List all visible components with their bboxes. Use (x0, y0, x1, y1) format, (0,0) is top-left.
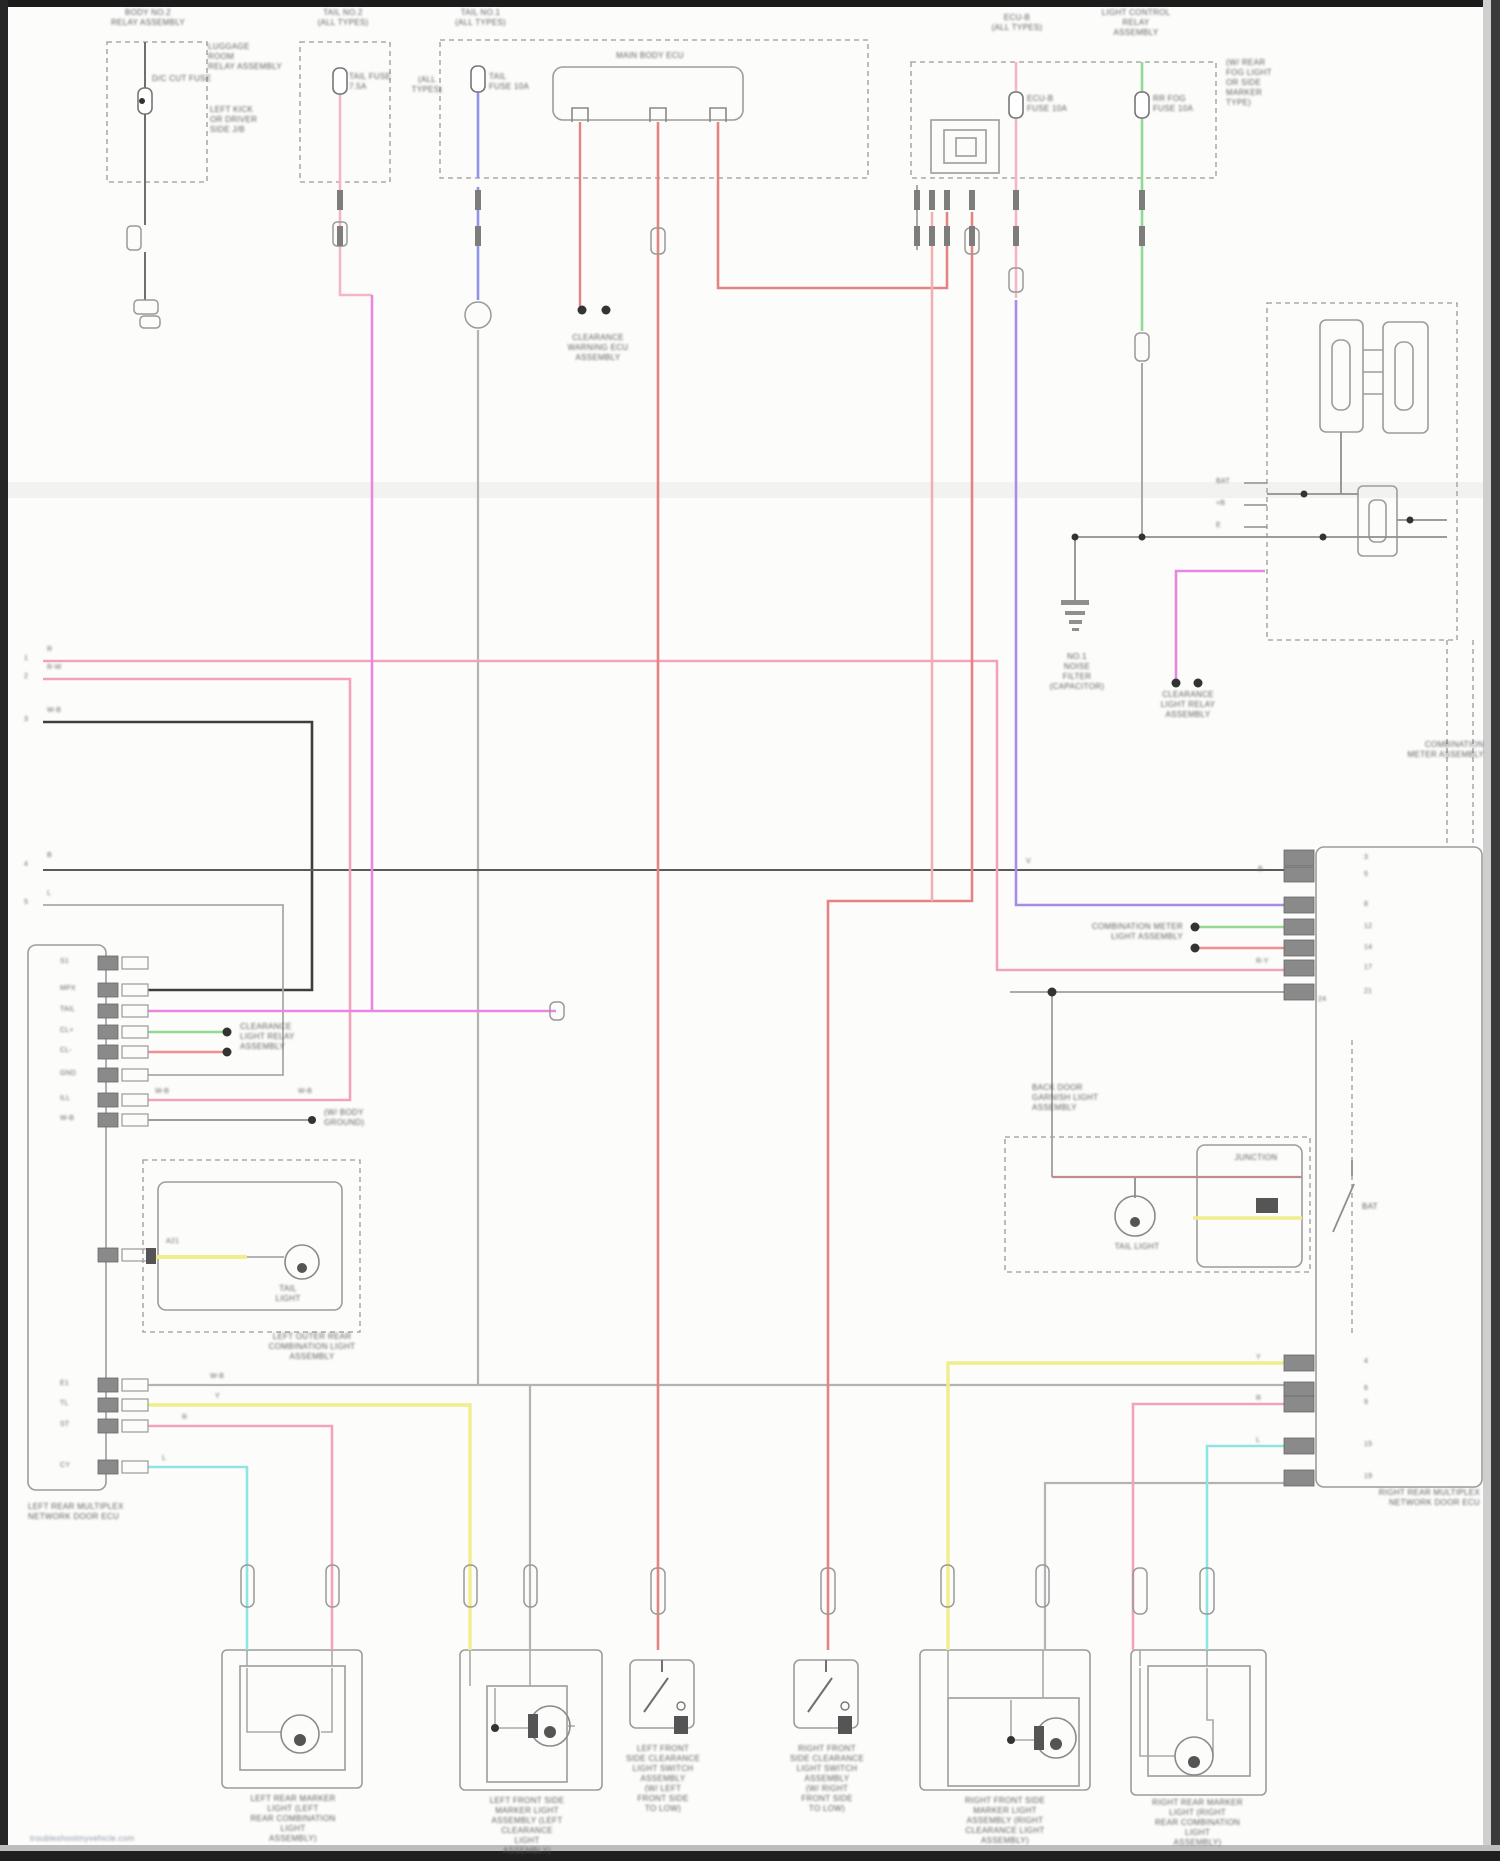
pin-code-5: L (47, 890, 51, 897)
wire-code-l: L (162, 1455, 166, 1462)
lbl-fuse5: RR FOGFUSE 10A (1153, 94, 1215, 114)
cap-left-kick-panel: LEFT KICKOR DRIVERSIDE J/B (210, 105, 300, 135)
lbl-bd-junction: JUNCTION (1220, 1153, 1292, 1163)
meter-pin-b: +B (1216, 500, 1225, 507)
scan-border-right-soft (1483, 0, 1491, 1861)
cap-right-rear-ecu: RIGHT REAR MULTIPLEXNETWORK DOOR ECU (1175, 1488, 1480, 1508)
rb-lo-code-l: L (1256, 1437, 1260, 1444)
cap-back-door-garnish: BACK DOORGARNISH LIGHTASSEMBLY (1032, 1083, 1150, 1113)
ecu-row-6: GND (60, 1070, 76, 1077)
cap-fuse4: ECU-B(ALL TYPES) (973, 13, 1061, 33)
wire-code-wb-1: W-B (155, 1088, 169, 1095)
pin-num-4: 4 (24, 861, 28, 868)
pin-code-2: R-W (47, 664, 62, 671)
cap-top-left-relay-block: BODY NO.2RELAY ASSEMBLY (83, 8, 213, 28)
cap-meter-light: COMBINATION METERLIGHT ASSEMBLY (1068, 922, 1183, 942)
lbl-fuse4: ECU-BFUSE 10A (1027, 94, 1087, 114)
cap-fuse3: TAIL NO.1(ALL TYPES) (438, 8, 523, 28)
cap-fuse2: TAIL NO.2(ALL TYPES) (288, 8, 398, 28)
cap-box1: LEFT REAR MARKERLIGHT (LEFTREAR COMBINAT… (223, 1794, 363, 1844)
wiring-diagram-page: troubleshootmyvehicle.com BODY NO.2RELAY… (0, 0, 1500, 1861)
cap-light-control-relay: LIGHT CONTROLRELAYASSEMBLY (1072, 8, 1200, 38)
ecu-row-7: ILL (60, 1095, 70, 1102)
cap-combination-meter: COMBINATIONMETER ASSEMBLY (1352, 740, 1484, 760)
ecu-row-3: TAIL (60, 1006, 75, 1013)
scan-border-left (0, 0, 8, 1861)
rb-lo-code-y: Y (1256, 1354, 1261, 1361)
ecu-row-5: CL- (60, 1047, 72, 1054)
pin-num-1: 1 (24, 655, 28, 662)
cap-luggage-room: LUGGAGEROOMRELAY ASSEMBLY (208, 42, 298, 72)
lbl-bat: BAT (1362, 1202, 1402, 1212)
switch-contacts (677, 1702, 849, 1710)
ecu-row-13: CY (60, 1462, 70, 1469)
pin-num-5: 5 (24, 899, 28, 906)
rb-lo-2: 6 (1364, 1385, 1368, 1392)
lbl-fuse2: TAIL FUSE7.5A (349, 72, 409, 92)
rb-up-24: 24 (1318, 996, 1326, 1003)
rb-up-3: 8 (1364, 901, 1368, 908)
ecu-row-12: ST (60, 1421, 69, 1428)
rb-up-code-b: B (1258, 866, 1263, 873)
rb-up-1: 3 (1364, 854, 1368, 861)
scan-border-right (1491, 0, 1500, 1861)
ecu-row-1: S1 (60, 958, 69, 965)
rb-lo-code-r: R (1256, 1395, 1261, 1402)
dashed-boxes (107, 40, 1473, 1337)
cap-clearance-light-relay: CLEARANCELIGHT RELAYASSEMBLY (1138, 690, 1238, 720)
cap-box2: LEFT FRONT SIDEMARKER LIGHTASSEMBLY (LEF… (448, 1796, 606, 1856)
cap-box6: RIGHT REAR MARKERLIGHT (RIGHTREAR COMBIN… (1120, 1798, 1275, 1848)
wire-code-v: V (1026, 858, 1031, 865)
wire-code-r: R (182, 1414, 187, 1421)
rb-lo-3: 9 (1364, 1399, 1368, 1406)
ecu-row-4: CL+ (60, 1027, 74, 1034)
bulb-symbols (281, 1196, 1213, 1775)
pin-code-1: R (47, 646, 52, 653)
cap-box5: RIGHT FRONT SIDEMARKER LIGHTASSEMBLY (RI… (920, 1796, 1090, 1846)
scan-border-top (0, 0, 1500, 7)
rb-up-4: 12 (1364, 923, 1372, 930)
cap-left-tail-light: TAILLIGHT (248, 1284, 328, 1304)
connector-stubs (337, 190, 1145, 246)
lbl-fuse3-left: (ALLTYPES) (405, 75, 449, 95)
rb-up-2: 5 (1364, 871, 1368, 878)
cap-clearance-relay-left: CLEARANCELIGHT RELAYASSEMBLY (240, 1022, 336, 1052)
pin-num-3: 3 (24, 716, 28, 723)
rb-lo-5: 19 (1364, 1473, 1372, 1480)
cap-body-ground-note: (W/ BODYGROUND) (324, 1108, 404, 1128)
pin-code-4: B (47, 852, 52, 859)
rb-lo-4: 15 (1364, 1441, 1372, 1448)
ecu-row-10: E1 (60, 1380, 69, 1387)
cap-left-rear-ecu: LEFT REAR MULTIPLEXNETWORK DOOR ECU (28, 1502, 348, 1522)
wiring-svg (0, 0, 1500, 1861)
noise-filter-symbol (1061, 600, 1089, 631)
wire-code-wb-3: W-B (210, 1373, 224, 1380)
cap-box4: RIGHT FRONTSIDE CLEARANCELIGHT SWITCHASS… (768, 1744, 886, 1814)
cap-box3: LEFT FRONTSIDE CLEARANCELIGHT SWITCHASSE… (604, 1744, 722, 1814)
rb-lo-1: 4 (1364, 1358, 1368, 1365)
wire-code-wb-2: W-B (298, 1088, 312, 1095)
lbl-fuse3: TAILFUSE 10A (489, 72, 549, 92)
cap-clearance-warning-ecu: CLEARANCEWARNING ECUASSEMBLY (548, 333, 648, 363)
meter-pin-e: E (1216, 522, 1221, 529)
ecu-row-9: A21 (166, 1238, 179, 1245)
rb-up-5: 14 (1364, 944, 1372, 951)
ecu-row-2: MPX (60, 985, 76, 992)
cap-bd-tail-light: TAIL LIGHT (1094, 1242, 1180, 1252)
rb-up-code-ry: R-Y (1256, 958, 1269, 965)
ecu-row-8: W-B (60, 1115, 74, 1122)
wire-code-y: Y (215, 1393, 220, 1400)
rb-up-7: 21 (1364, 988, 1372, 995)
ecu-row-11: TL (60, 1400, 69, 1407)
cap-main-body-ecu: MAIN BODY ECU (575, 51, 725, 61)
scan-border-bottom (0, 1851, 1500, 1861)
meter-pin-bat: BAT (1216, 478, 1230, 485)
rb-up-6: 17 (1364, 964, 1372, 971)
pin-num-2: 2 (24, 673, 28, 680)
lbl-fuse1: D/C CUT FUSE (152, 74, 222, 84)
cap-rear-fog-note: (W/ REARFOG LIGHTOR SIDEMARKERTYPE) (1226, 58, 1306, 108)
wires-colored (43, 62, 1302, 1650)
cap-left-outer-rear-comb: LEFT OUTER REARCOMBINATION LIGHTASSEMBLY (238, 1332, 386, 1362)
meter-ladder (1363, 350, 1383, 394)
watermark: troubleshootmyvehicle.com (30, 1834, 250, 1844)
pin-code-3: W-B (47, 707, 61, 714)
cap-noise-filter: NO.1NOISEFILTER(CAPACITOR) (1034, 652, 1120, 692)
